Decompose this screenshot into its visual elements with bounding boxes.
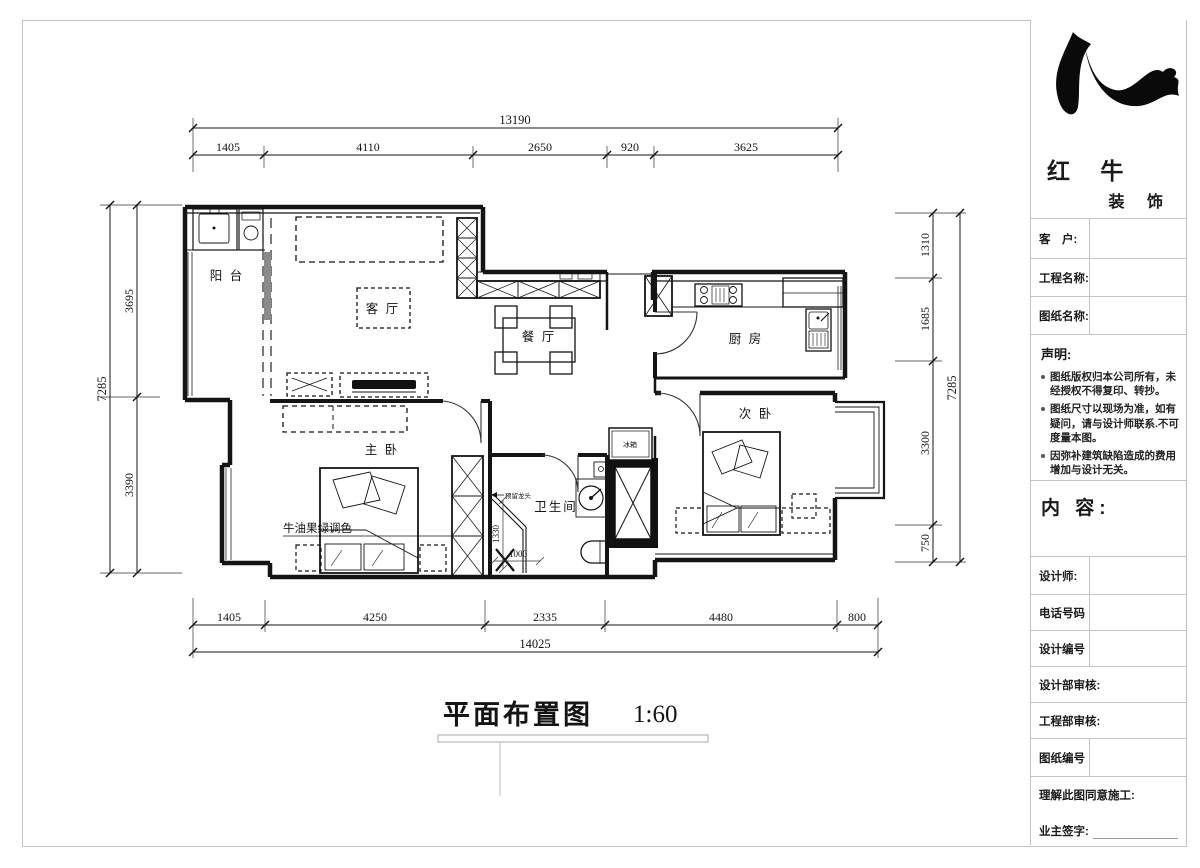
dim-right-seg0: 1310 xyxy=(918,233,932,257)
dim-top-seg3: 920 xyxy=(621,140,639,154)
dim-bottom-seg1: 4250 xyxy=(363,610,387,624)
bullet-dot-icon xyxy=(1041,407,1045,411)
floor-plan-drawing: 13190 1405 4110 2650 920 3625 1405 4250 … xyxy=(0,0,1010,868)
bullet-dot-icon xyxy=(1041,454,1045,458)
phone-value-cell xyxy=(1089,595,1186,630)
design-no-value-cell xyxy=(1089,631,1186,666)
drawing-name-value-cell xyxy=(1089,297,1186,334)
dim-right-seg1: 1685 xyxy=(918,307,932,331)
drawing-name-label: 图纸名称: xyxy=(1031,308,1089,324)
row-design-review: 设计部审核: xyxy=(1031,666,1186,702)
dim-right-seg3: 750 xyxy=(918,534,932,552)
plan-scale: 1:60 xyxy=(633,701,677,728)
title-block: 红 牛 装 饰 客 户: 工程名称: 图纸名称: 声明: 图纸版权归本公司所有，… xyxy=(1030,20,1186,845)
title-underline xyxy=(438,735,708,796)
dim-right-seg2: 3300 xyxy=(918,431,932,455)
dim-bottom-seg3: 4480 xyxy=(709,610,733,624)
customer-label: 客 户: xyxy=(1031,231,1089,247)
dim-right-total: 7285 xyxy=(945,376,959,401)
room-label-master-bedroom: 主 卧 xyxy=(365,443,399,457)
statement-item: 因弥补建筑缺陷造成的费用增加与设计无关。 xyxy=(1041,449,1180,477)
owner-sign-label: 业主签字: xyxy=(1039,823,1089,839)
dim-bottom-seg4: 800 xyxy=(848,610,866,624)
dim-top-seg4: 3625 xyxy=(734,140,758,154)
row-designer: 设计师: xyxy=(1031,556,1186,594)
project-value-cell xyxy=(1089,259,1186,296)
row-drawing-no: 图纸编号 xyxy=(1031,738,1186,776)
content-block: 内 容: xyxy=(1031,480,1186,556)
room-label-dining: 餐 厅 xyxy=(522,329,556,344)
dim-bottom-seg2: 2335 xyxy=(533,610,557,624)
row-eng-review: 工程部审核: xyxy=(1031,702,1186,738)
room-label-secondary-bedroom: 次 卧 xyxy=(739,407,773,421)
room-label-bathroom: 卫生间 xyxy=(534,500,578,514)
balcony-fixtures xyxy=(185,209,265,250)
agree-label: 理解此图同意施工: xyxy=(1039,787,1178,803)
doors xyxy=(443,312,700,492)
company-name: 红 牛 xyxy=(1047,152,1186,186)
fridge-label: 冰箱 xyxy=(623,440,637,449)
dim-top-seg0: 1405 xyxy=(216,140,240,154)
dim-top-seg2: 2650 xyxy=(528,140,552,154)
phone-label: 电话号码 xyxy=(1031,605,1089,621)
bay-window-secondary xyxy=(835,402,884,498)
bullet-dot-icon xyxy=(1041,375,1045,379)
statement-item: 图纸版权归本公司所有，未经授权不得复印、转抄。 xyxy=(1041,370,1180,398)
room-label-living: 客 厅 xyxy=(366,301,400,316)
dim-bottom-seg0: 1405 xyxy=(217,610,241,624)
room-label-balcony: 阳 台 xyxy=(210,268,244,283)
signature-block: 理解此图同意施工: 业主签字: xyxy=(1031,776,1186,845)
designer-value-cell xyxy=(1089,557,1186,594)
statement-text-2: 图纸尺寸以现场为准，如有疑问，请与设计师联系.不可度量本图。 xyxy=(1050,402,1180,445)
drawing-no-label: 图纸编号 xyxy=(1031,750,1089,766)
design-no-label: 设计编号 xyxy=(1031,641,1089,657)
design-review-label: 设计部审核: xyxy=(1031,677,1100,693)
color-note: 牛油果绿调色 xyxy=(283,521,352,535)
dim-left xyxy=(100,201,182,577)
statement-title: 声明: xyxy=(1041,344,1180,363)
statement-block: 声明: 图纸版权归本公司所有，未经授权不得复印、转抄。 图纸尺寸以现场为准，如有… xyxy=(1031,334,1186,480)
faucet-note: 预留龙头 xyxy=(505,491,532,500)
statement-text-1: 图纸版权归本公司所有，未经授权不得复印、转抄。 xyxy=(1050,370,1180,398)
row-drawing-name: 图纸名称: xyxy=(1031,296,1186,334)
radiator xyxy=(264,252,271,320)
content-label: 内 容: xyxy=(1041,498,1111,519)
dim-left-seg1: 3390 xyxy=(122,473,136,497)
project-label: 工程名称: xyxy=(1031,270,1089,286)
dim-left-seg0: 3695 xyxy=(122,289,136,313)
row-project: 工程名称: xyxy=(1031,258,1186,296)
eng-review-label: 工程部审核: xyxy=(1031,713,1100,729)
secondary-bed xyxy=(676,432,830,535)
dim-left-total: 7285 xyxy=(95,377,109,402)
company-subname: 装 饰 xyxy=(1031,188,1172,212)
company-logo-cell: 红 牛 装 饰 xyxy=(1031,20,1186,218)
shower-depth-dim: 1330 xyxy=(491,525,501,544)
cabinet-hatched xyxy=(457,218,600,298)
duct-shaft xyxy=(607,458,658,548)
row-phone: 电话号码 xyxy=(1031,594,1186,630)
shower-width-dim: 1000 xyxy=(509,549,528,559)
room-label-kitchen: 厨 房 xyxy=(729,331,763,346)
master-bed xyxy=(283,406,483,576)
faucet-note-arrow xyxy=(491,492,504,498)
owner-signature-line xyxy=(1093,826,1178,839)
redbull-swoosh-logo-icon xyxy=(1031,20,1187,145)
drawing-no-value-cell xyxy=(1089,739,1186,776)
designer-label: 设计师: xyxy=(1031,568,1089,584)
statement-text-3: 因弥补建筑缺陷造成的费用增加与设计无关。 xyxy=(1050,449,1180,477)
row-customer: 客 户: xyxy=(1031,218,1186,258)
row-design-no: 设计编号 xyxy=(1031,630,1186,666)
plan-title: 平面布置图 xyxy=(443,700,593,730)
customer-value-cell xyxy=(1089,219,1186,258)
statement-item: 图纸尺寸以现场为准，如有疑问，请与设计师联系.不可度量本图。 xyxy=(1041,402,1180,445)
dim-top-total: 13190 xyxy=(499,113,530,127)
dim-bottom-total: 14025 xyxy=(519,637,550,651)
dim-top-seg1: 4110 xyxy=(356,140,380,154)
